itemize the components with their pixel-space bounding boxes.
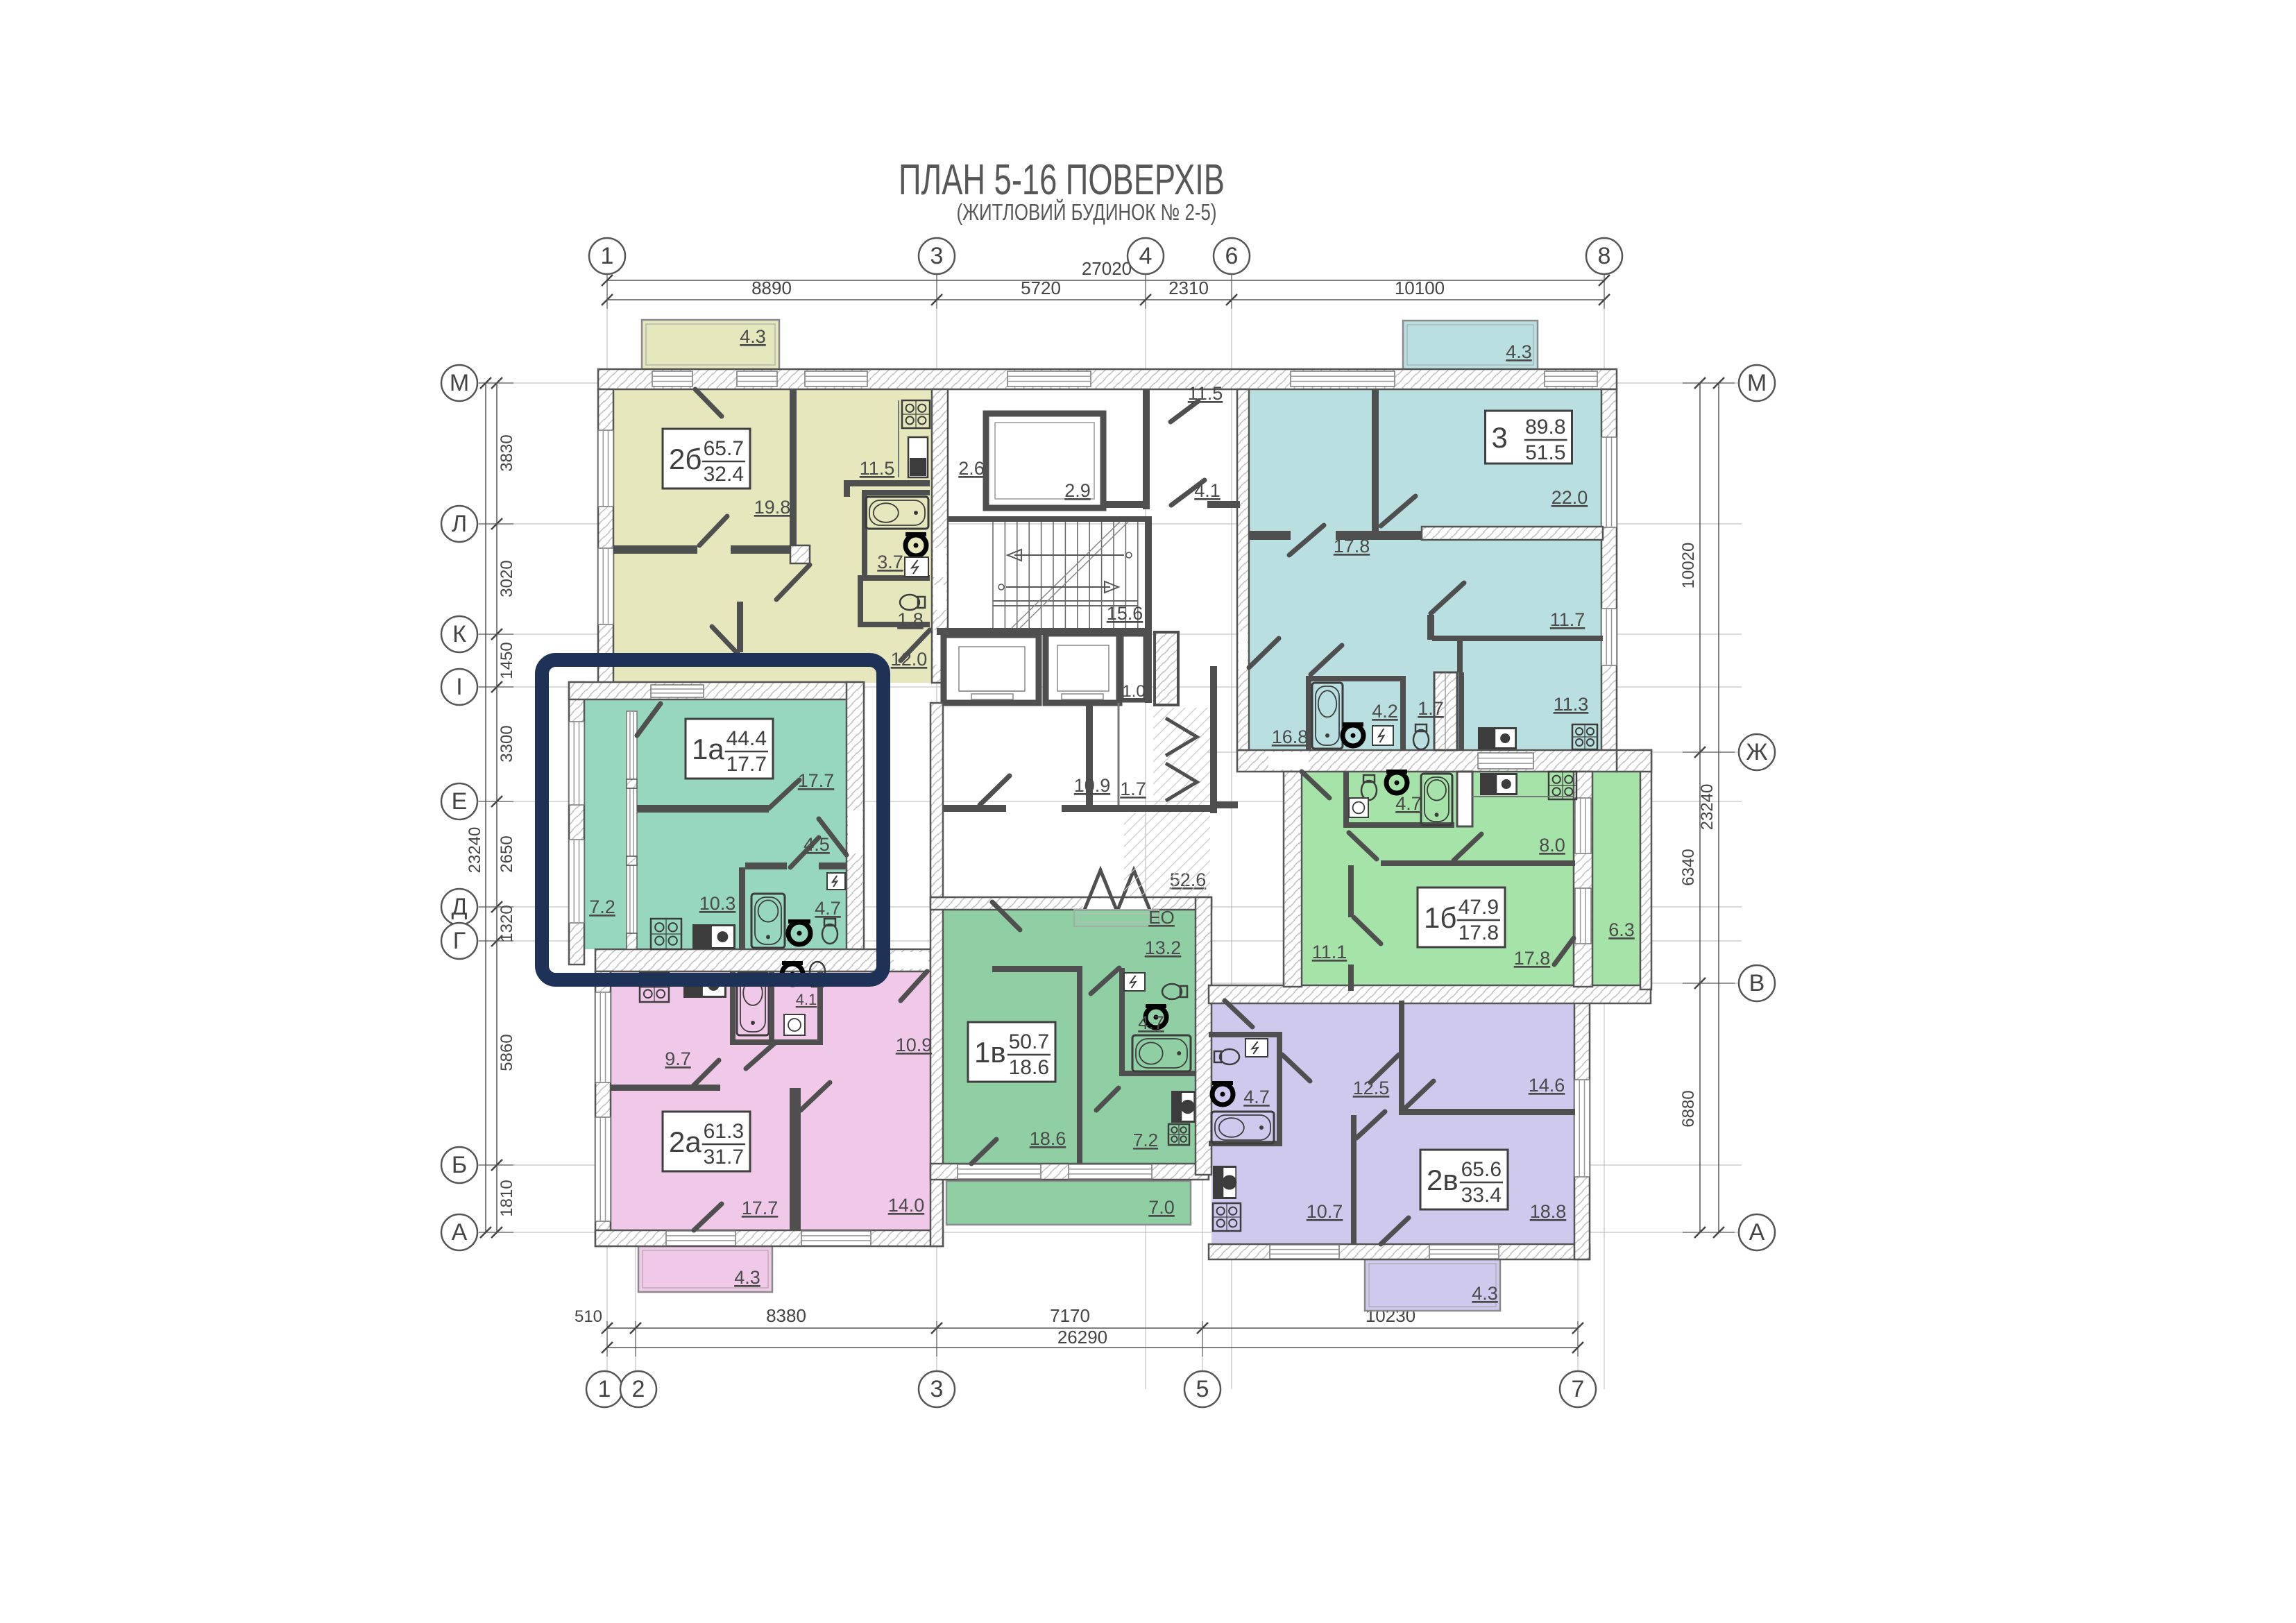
svg-text:47.9: 47.9 xyxy=(1459,896,1499,919)
svg-text:9.7: 9.7 xyxy=(665,1048,691,1069)
svg-text:16.8: 16.8 xyxy=(1272,726,1309,747)
svg-text:11.5: 11.5 xyxy=(860,458,895,479)
svg-text:3: 3 xyxy=(930,1376,944,1402)
svg-text:1.7: 1.7 xyxy=(1120,779,1146,799)
svg-text:ЕО: ЕО xyxy=(1148,907,1175,928)
svg-text:3.7: 3.7 xyxy=(877,552,903,572)
svg-text:7170: 7170 xyxy=(1050,1305,1090,1326)
svg-text:Л: Л xyxy=(452,511,467,537)
svg-text:3: 3 xyxy=(930,243,944,269)
svg-text:32.4: 32.4 xyxy=(704,463,744,486)
svg-text:А: А xyxy=(1749,1219,1765,1246)
svg-text:4.3: 4.3 xyxy=(740,326,766,347)
svg-text:В: В xyxy=(1749,970,1765,996)
svg-text:4.3: 4.3 xyxy=(1472,1283,1498,1304)
svg-text:22.0: 22.0 xyxy=(1551,487,1588,508)
svg-text:44.4: 44.4 xyxy=(726,727,767,750)
svg-text:1а: 1а xyxy=(692,733,724,765)
svg-text:1: 1 xyxy=(601,243,614,269)
svg-text:4.7: 4.7 xyxy=(1243,1087,1270,1107)
svg-text:1: 1 xyxy=(598,1376,611,1402)
svg-text:14.0: 14.0 xyxy=(888,1195,925,1216)
svg-text:12.0: 12.0 xyxy=(891,649,928,670)
svg-text:23240: 23240 xyxy=(466,827,484,874)
svg-text:31.7: 31.7 xyxy=(704,1146,744,1169)
svg-text:4.3: 4.3 xyxy=(734,1267,760,1288)
svg-text:1б: 1б xyxy=(1424,901,1456,934)
svg-text:11.3: 11.3 xyxy=(1554,694,1589,715)
svg-text:4.2: 4.2 xyxy=(1372,701,1398,722)
svg-text:17.8: 17.8 xyxy=(1459,921,1499,944)
svg-text:26290: 26290 xyxy=(1057,1327,1107,1348)
svg-text:М: М xyxy=(450,370,469,396)
svg-text:10100: 10100 xyxy=(1395,278,1445,298)
svg-text:65.6: 65.6 xyxy=(1461,1158,1502,1181)
svg-text:19.8: 19.8 xyxy=(754,497,791,518)
svg-text:17.8: 17.8 xyxy=(1334,536,1370,556)
svg-text:17.8: 17.8 xyxy=(1514,948,1551,969)
svg-text:Б: Б xyxy=(452,1152,467,1178)
svg-text:6: 6 xyxy=(1225,243,1239,269)
svg-text:14.6: 14.6 xyxy=(1529,1075,1565,1096)
svg-text:3020: 3020 xyxy=(498,560,516,597)
svg-text:7.2: 7.2 xyxy=(589,897,615,917)
svg-text:6340: 6340 xyxy=(1679,849,1698,885)
svg-text:11.7: 11.7 xyxy=(1550,609,1585,630)
svg-text:Е: Е xyxy=(452,788,468,815)
svg-text:2.6: 2.6 xyxy=(958,458,985,479)
svg-text:І: І xyxy=(456,674,462,700)
svg-text:1320: 1320 xyxy=(498,905,516,942)
svg-text:89.8: 89.8 xyxy=(1525,416,1565,439)
svg-text:4.1: 4.1 xyxy=(796,991,817,1008)
svg-text:4.1: 4.1 xyxy=(1194,480,1221,501)
svg-text:4.7: 4.7 xyxy=(1395,793,1422,814)
svg-text:(ЖИТЛОВИЙ БУДИНОК № 2-5): (ЖИТЛОВИЙ БУДИНОК № 2-5) xyxy=(957,199,1217,225)
svg-text:6.3: 6.3 xyxy=(1608,919,1635,940)
svg-text:1450: 1450 xyxy=(498,642,516,679)
svg-text:10.9: 10.9 xyxy=(1074,775,1111,796)
svg-text:7: 7 xyxy=(1572,1376,1585,1402)
svg-text:18.6: 18.6 xyxy=(1009,1056,1049,1079)
svg-text:13.2: 13.2 xyxy=(1145,937,1182,958)
svg-text:51.5: 51.5 xyxy=(1525,441,1565,464)
svg-text:8890: 8890 xyxy=(751,278,792,298)
svg-text:2б: 2б xyxy=(669,443,701,475)
svg-text:10020: 10020 xyxy=(1679,543,1698,589)
svg-text:2.9: 2.9 xyxy=(1064,480,1091,501)
svg-text:1.0: 1.0 xyxy=(1122,682,1145,701)
svg-text:Ж: Ж xyxy=(1746,739,1767,765)
svg-text:510: 510 xyxy=(575,1307,602,1326)
svg-text:2а: 2а xyxy=(669,1125,701,1158)
svg-text:1.7: 1.7 xyxy=(1418,698,1444,719)
svg-text:50.7: 50.7 xyxy=(1009,1030,1049,1053)
svg-text:4.7: 4.7 xyxy=(815,898,841,919)
svg-text:17.7: 17.7 xyxy=(726,753,767,776)
svg-text:ПЛАН 5-16 ПОВЕРХІВ: ПЛАН 5-16 ПОВЕРХІВ xyxy=(899,156,1225,204)
svg-text:3830: 3830 xyxy=(498,434,516,471)
svg-text:18.8: 18.8 xyxy=(1530,1201,1567,1222)
svg-text:33.4: 33.4 xyxy=(1461,1184,1502,1207)
svg-text:6880: 6880 xyxy=(1679,1090,1698,1127)
svg-text:8: 8 xyxy=(1598,243,1611,269)
svg-text:4.7: 4.7 xyxy=(1138,1012,1164,1033)
svg-text:5720: 5720 xyxy=(1021,278,1061,298)
svg-text:2310: 2310 xyxy=(1168,278,1209,298)
svg-text:1.8: 1.8 xyxy=(897,609,924,630)
svg-text:27020: 27020 xyxy=(1082,258,1132,279)
svg-text:3: 3 xyxy=(1492,421,1508,454)
svg-text:5860: 5860 xyxy=(498,1034,516,1071)
svg-text:10.7: 10.7 xyxy=(1307,1201,1343,1222)
svg-text:7.0: 7.0 xyxy=(1148,1197,1175,1218)
svg-text:К: К xyxy=(452,621,466,647)
svg-text:1в: 1в xyxy=(974,1036,1006,1069)
svg-text:18.6: 18.6 xyxy=(1030,1128,1066,1149)
svg-text:А: А xyxy=(452,1219,468,1246)
svg-text:10.3: 10.3 xyxy=(699,893,736,914)
svg-text:15.6: 15.6 xyxy=(1107,603,1143,624)
svg-text:17.7: 17.7 xyxy=(742,1198,779,1218)
svg-text:17.7: 17.7 xyxy=(798,770,835,791)
svg-text:23240: 23240 xyxy=(1698,784,1717,831)
svg-text:4.3: 4.3 xyxy=(1506,341,1532,362)
svg-text:11.5: 11.5 xyxy=(1188,383,1223,404)
svg-text:Г: Г xyxy=(453,928,466,954)
svg-text:2в: 2в xyxy=(1427,1164,1459,1196)
svg-text:5: 5 xyxy=(1196,1376,1209,1402)
svg-text:1810: 1810 xyxy=(498,1180,516,1216)
svg-text:8.0: 8.0 xyxy=(1539,835,1565,856)
svg-text:65.7: 65.7 xyxy=(704,437,744,460)
svg-text:3300: 3300 xyxy=(498,725,516,762)
svg-text:8380: 8380 xyxy=(766,1305,806,1326)
svg-text:11.1: 11.1 xyxy=(1312,942,1347,962)
svg-text:4.5: 4.5 xyxy=(803,834,830,855)
svg-text:10.9: 10.9 xyxy=(896,1035,933,1055)
svg-text:2650: 2650 xyxy=(498,835,516,872)
svg-text:Д: Д xyxy=(451,894,467,920)
svg-text:4: 4 xyxy=(1139,243,1153,269)
svg-text:61.3: 61.3 xyxy=(704,1120,744,1143)
svg-text:12.5: 12.5 xyxy=(1353,1078,1390,1098)
svg-text:7.2: 7.2 xyxy=(1133,1130,1158,1150)
svg-text:М: М xyxy=(1747,370,1767,396)
svg-text:2: 2 xyxy=(632,1376,645,1402)
